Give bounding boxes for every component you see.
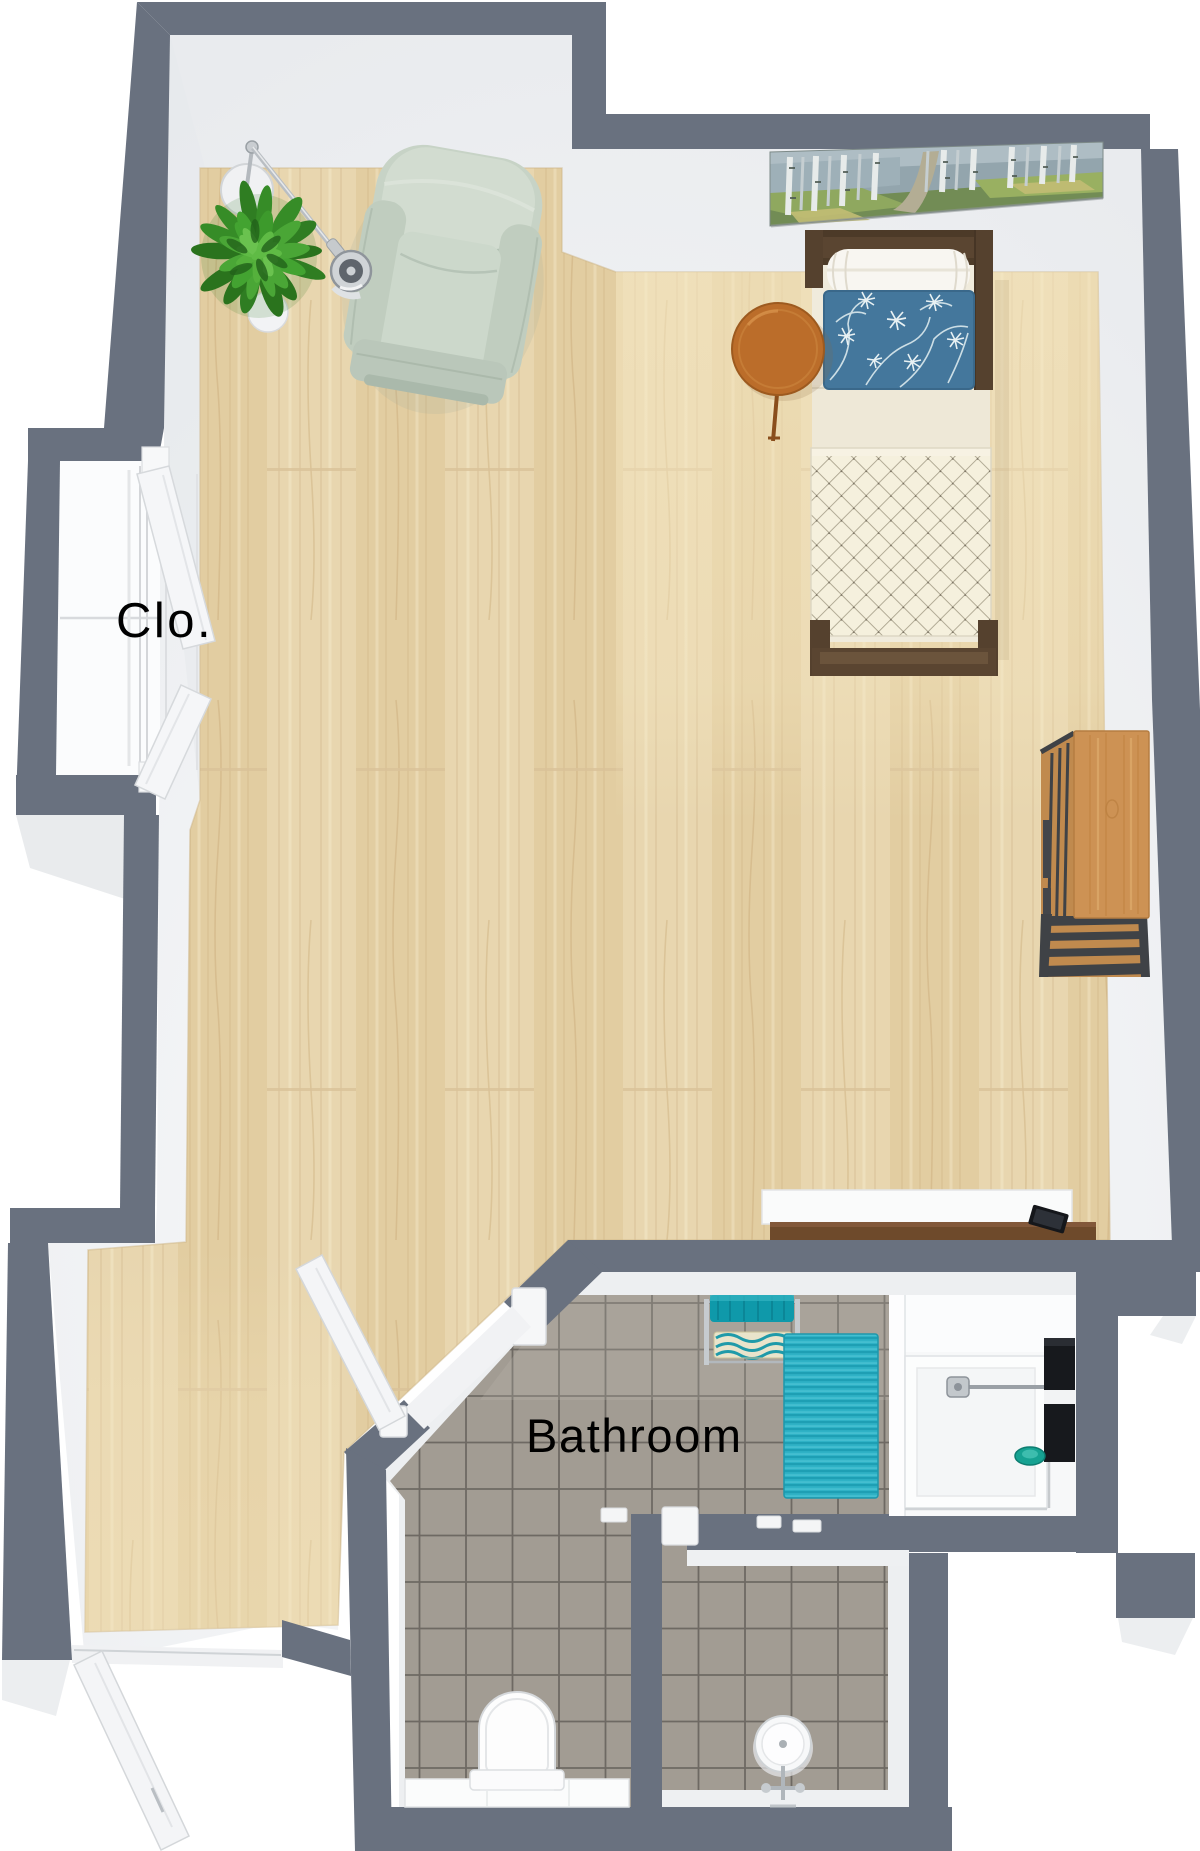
- svg-text:Clo.: Clo.: [116, 594, 213, 648]
- svg-text:Bathroom: Bathroom: [526, 1409, 743, 1462]
